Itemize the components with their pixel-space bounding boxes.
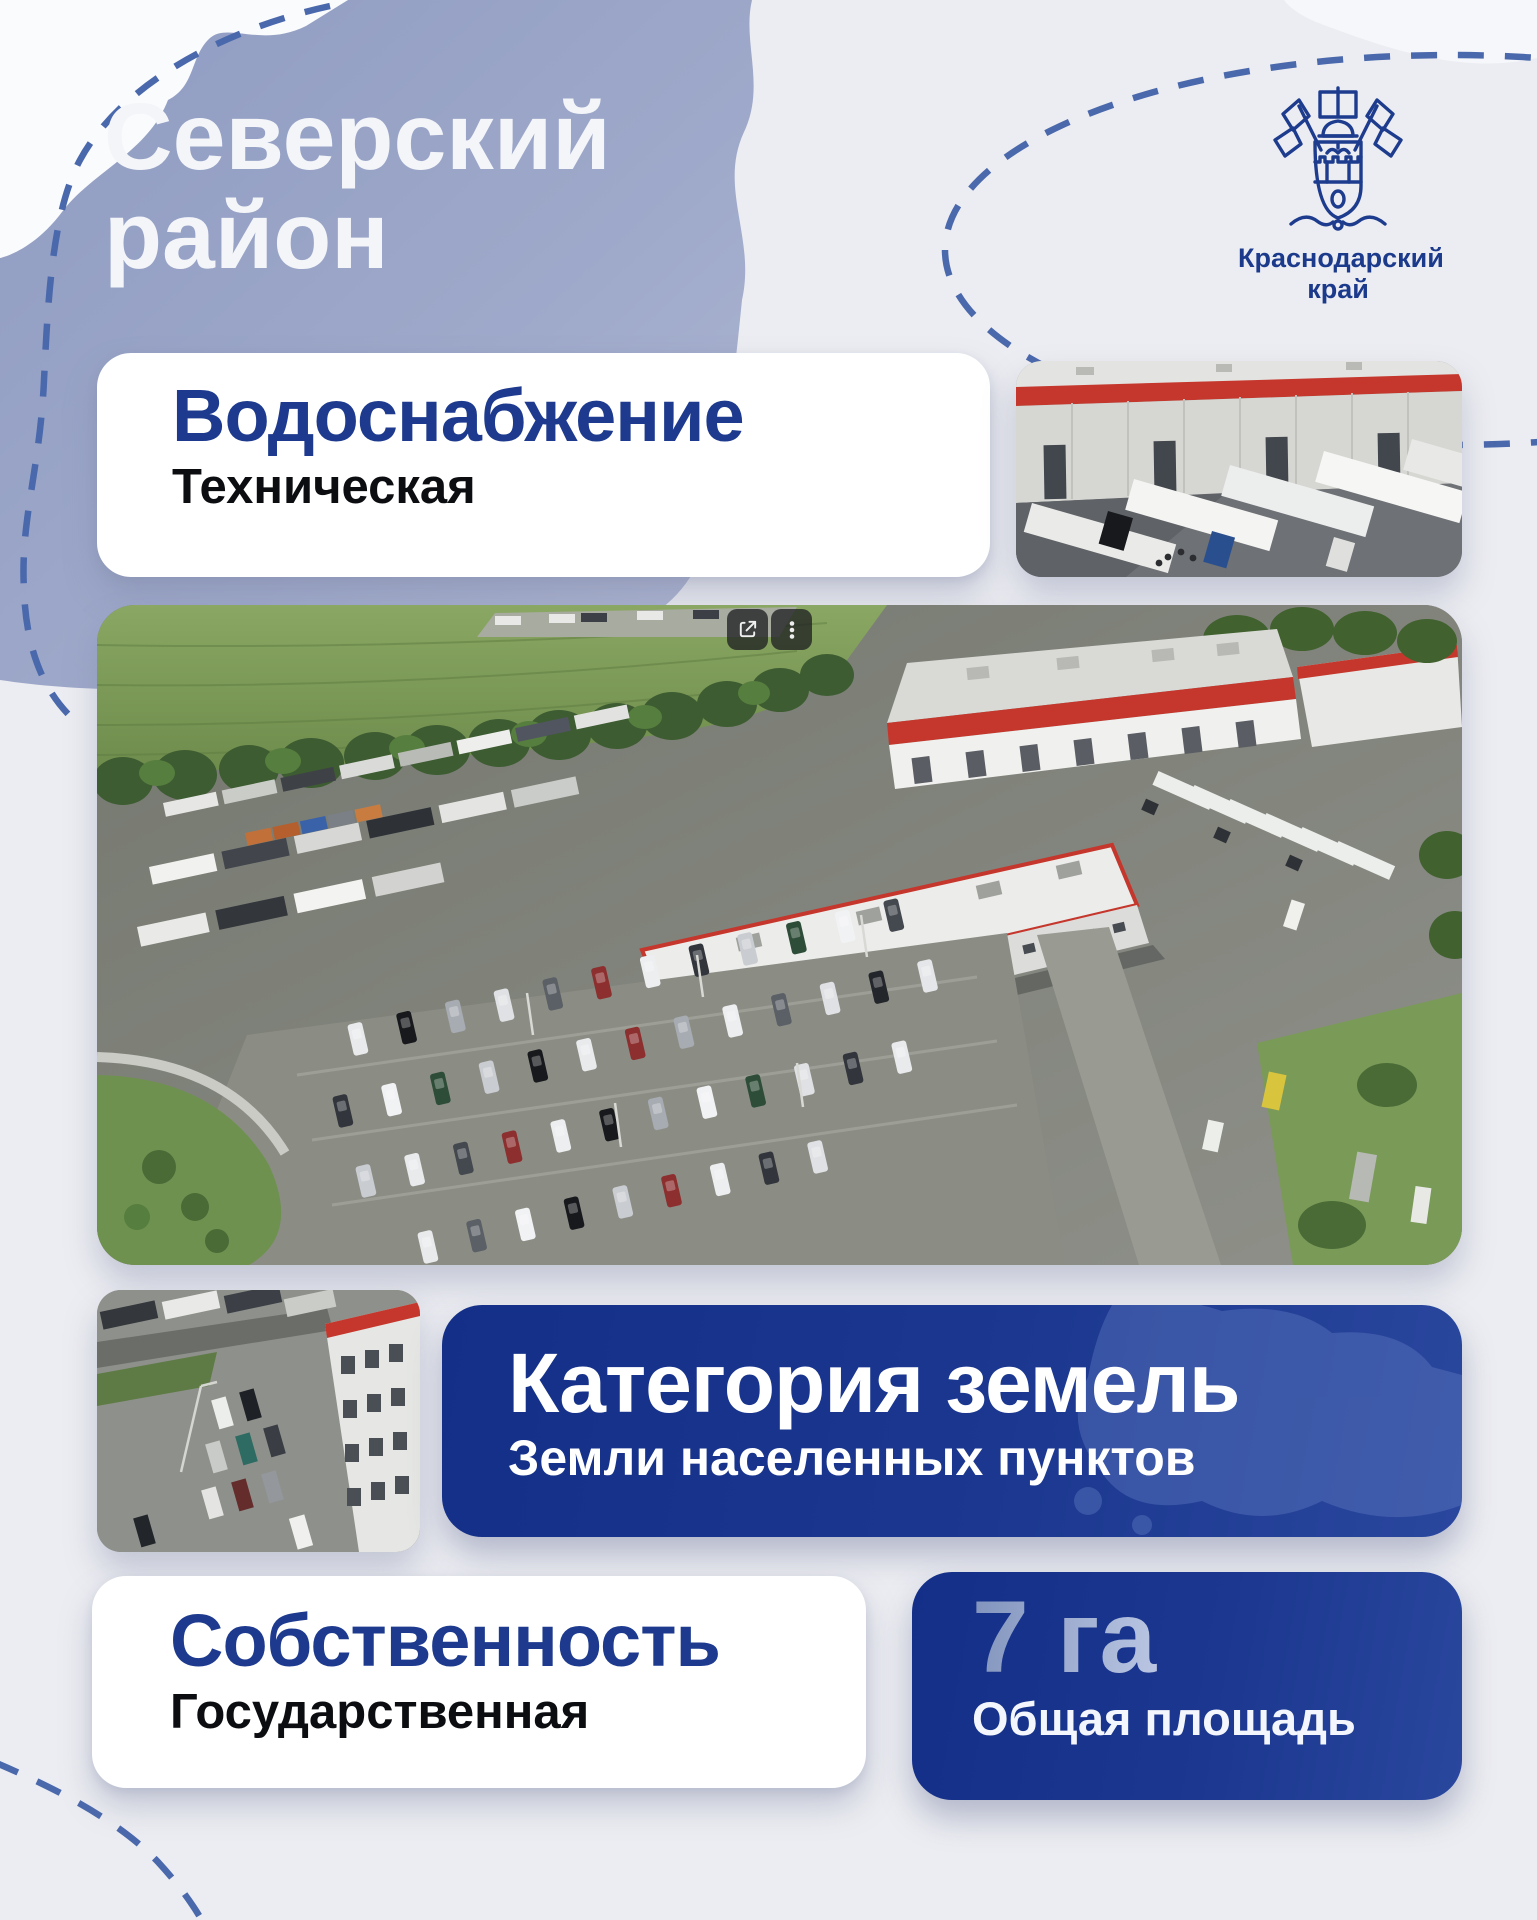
region-emblem-block: Краснодарский край <box>1238 84 1438 305</box>
main-aerial-photo <box>97 605 1462 1265</box>
loading-dock-photo <box>1016 361 1462 577</box>
district-title: Северский район <box>104 88 611 286</box>
water-supply-title: Водоснабжение <box>172 379 960 453</box>
krasnodar-coat-of-arms-icon <box>1259 84 1417 234</box>
region-name-line1: Краснодарский <box>1238 243 1438 274</box>
open-in-new-icon <box>736 618 759 641</box>
parking-photo <box>97 1290 420 1552</box>
region-name: Краснодарский край <box>1238 243 1438 305</box>
menu-button[interactable] <box>771 609 812 650</box>
kebab-menu-icon <box>781 619 803 641</box>
total-area-value: 7 га <box>972 1584 1442 1691</box>
district-title-line1: Северский <box>104 88 611 187</box>
photo-viewer-toolbar <box>727 609 812 650</box>
land-category-title: Категория земель <box>508 1341 1432 1425</box>
ownership-title: Собственность <box>170 1604 840 1678</box>
ownership-card: Собственность Государственная <box>92 1576 866 1788</box>
water-supply-card: Водоснабжение Техническая <box>97 353 990 577</box>
district-title-line2: район <box>104 187 611 286</box>
water-supply-value: Техническая <box>172 462 960 513</box>
ownership-value: Государственная <box>170 1687 840 1738</box>
white-landmass-topright <box>1284 0 1537 63</box>
land-category-value: Земли населенных пунктов <box>508 1432 1432 1485</box>
share-button[interactable] <box>727 609 768 650</box>
land-category-card: Категория земель Земли населенных пункто… <box>442 1305 1462 1537</box>
infographic-page: Северский район Кр <box>0 0 1537 1920</box>
total-area-card: 7 га Общая площадь <box>912 1572 1462 1800</box>
total-area-label: Общая площадь <box>972 1695 1442 1742</box>
region-name-line2: край <box>1238 274 1438 305</box>
